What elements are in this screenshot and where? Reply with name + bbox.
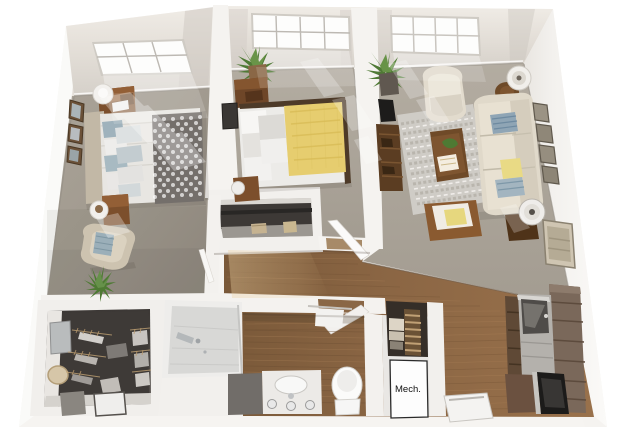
svg-text:Mech.: Mech. (395, 384, 421, 395)
